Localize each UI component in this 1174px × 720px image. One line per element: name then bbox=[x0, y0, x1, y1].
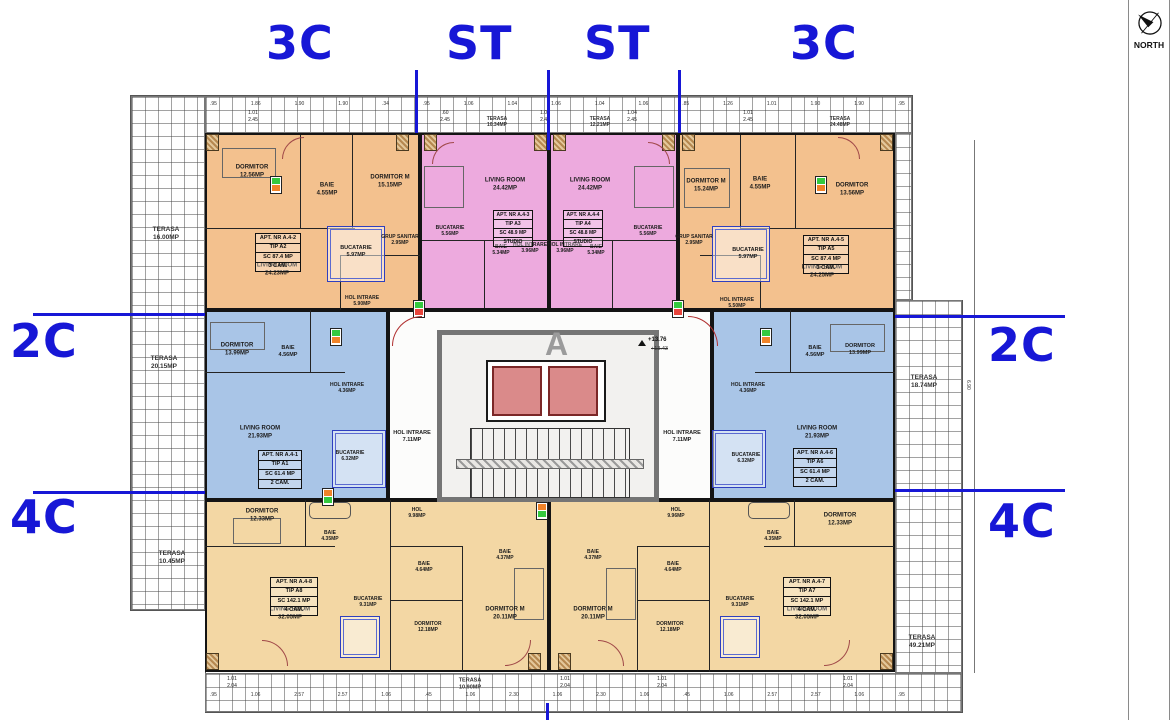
riser-shaft bbox=[322, 488, 334, 506]
plan-outline bbox=[912, 95, 913, 301]
north-compass-icon bbox=[1133, 6, 1167, 40]
dimension-pair: 1.01 2.04 bbox=[843, 676, 853, 689]
terrace-label: TERASA 24.48MP bbox=[830, 116, 851, 128]
zone-divider-line bbox=[678, 70, 681, 133]
apartment-info-box-a4-6: APT. NR A.4-6TIP A6 SC 61.4 MP2 CAM. bbox=[793, 448, 837, 487]
room-label: BAIE 4.64MP bbox=[415, 561, 432, 574]
room-label: BUCATARIE 6.32MP bbox=[732, 452, 761, 465]
terrace-left-grid bbox=[131, 96, 205, 610]
room-label: LIVING ROOM 21.93MP bbox=[240, 426, 280, 441]
wall-post bbox=[424, 134, 437, 151]
elevation-current: +13.76 bbox=[648, 337, 667, 343]
wall bbox=[484, 240, 485, 308]
wall bbox=[794, 500, 795, 546]
elevator-right bbox=[548, 366, 598, 416]
wall-post bbox=[206, 134, 219, 151]
room-label: HOL INTRARE 5.90MP bbox=[345, 295, 379, 308]
wall bbox=[764, 546, 894, 547]
wall bbox=[310, 310, 311, 372]
terrace-label: TERASA 10.90MP bbox=[459, 677, 482, 690]
room-label: BAIE 4.37MP bbox=[496, 549, 513, 562]
bed bbox=[424, 166, 464, 208]
plan-outline bbox=[962, 300, 963, 713]
hall-label-right: HOL INTRARE 7.11MP bbox=[663, 430, 700, 444]
wall bbox=[352, 135, 353, 228]
room-label: BAIE 4.64MP bbox=[664, 561, 681, 574]
terrace-label: TERASA 10.34MP bbox=[487, 116, 508, 128]
dimension-pair: 1.01 2.04 bbox=[560, 676, 570, 689]
room-label: DORMITOR 12.18MP bbox=[414, 621, 441, 634]
plan-outline bbox=[130, 610, 206, 611]
terrace-label: TERASA 12.21MP bbox=[590, 116, 611, 128]
terrace-right-grid bbox=[895, 300, 962, 673]
kitchen-a4-7 bbox=[720, 616, 760, 658]
room-label: BAIE 4.56MP bbox=[279, 345, 298, 359]
party-wall bbox=[548, 133, 551, 310]
room-label: HOL INTRARE 4.36MP bbox=[731, 382, 765, 395]
apartment-info-box-a4-7: APT. NR A.4-7TIP A7 SC 142.1 MP4 CAM. bbox=[783, 577, 831, 616]
terrace-label: TERASA 10.45MP bbox=[159, 550, 186, 566]
room-label: BAIE 4.56MP bbox=[806, 345, 825, 359]
room-label: DORMITOR 12.33MP bbox=[824, 513, 857, 528]
core-watermark-letter: A bbox=[545, 328, 568, 360]
elevator-left bbox=[492, 366, 542, 416]
riser-shaft bbox=[815, 176, 827, 194]
wall-post bbox=[682, 134, 695, 151]
bed bbox=[634, 166, 674, 208]
zone-divider-line bbox=[895, 489, 1065, 492]
floor-plan-canvas: A +13.76 +13.43 HOL INTRARE 7.11MP HOL I… bbox=[0, 0, 1174, 720]
zone-divider-line bbox=[547, 70, 550, 150]
wall bbox=[205, 372, 345, 373]
wall-post bbox=[396, 134, 409, 151]
stair-landing bbox=[456, 459, 644, 469]
wall bbox=[755, 372, 895, 373]
dimension-side: 6.90 bbox=[965, 380, 971, 390]
terrace-label: TERASA 16.00MP bbox=[153, 226, 180, 242]
north-strip: NORTH bbox=[1128, 0, 1170, 720]
terrace-right-narrow-grid bbox=[895, 133, 912, 300]
room-label: BAIE 4.35MP bbox=[764, 530, 781, 543]
wall bbox=[790, 310, 791, 372]
room-label: BUCATARIE 5.97MP bbox=[340, 245, 372, 259]
dimension-row-top: .951.861.901.90.34.951.061.041.061.041.0… bbox=[210, 101, 905, 107]
wall-post bbox=[558, 653, 571, 670]
room-label: HOL 9.96MP bbox=[667, 507, 684, 520]
room-label: DORMITOR 13.99MP bbox=[221, 343, 254, 358]
zone-label-4c-left: 4C bbox=[10, 494, 78, 540]
room-label: DORMITOR M 15.24MP bbox=[686, 179, 725, 194]
dimension-pair: 1.01 2.45 bbox=[248, 110, 258, 123]
zone-label-3c-left: 3C bbox=[266, 20, 334, 66]
dimension-row-bottom: .951.062.572.571.06.451.062.301.062.301.… bbox=[210, 692, 905, 698]
room-label: BUCATARIE 9.31MP bbox=[354, 596, 383, 609]
dimension-pair: 1.01 2.45 bbox=[743, 110, 753, 123]
terrace-label: TERASA 18.74MP bbox=[911, 374, 938, 390]
level-marker-icon bbox=[638, 340, 646, 346]
dimension-pair: 1.04 2.45 bbox=[627, 110, 637, 123]
apartment-info-box-a4-8: APT. NR A.4-8TIP A8 SC 142.1 MP4 CAM. bbox=[270, 577, 318, 616]
kitchen-a4-8 bbox=[340, 616, 380, 658]
wall-post bbox=[206, 653, 219, 670]
party-wall bbox=[548, 500, 551, 672]
wall-post bbox=[534, 134, 547, 151]
terrace-label: TERASA 49.21MP bbox=[909, 634, 936, 650]
dimension-pair: 1.01 2.04 bbox=[227, 676, 237, 689]
room-label: DORMITOR 12.33MP bbox=[246, 509, 279, 524]
room-label: DORMITOR 12.18MP bbox=[656, 621, 683, 634]
wall bbox=[390, 546, 462, 547]
room-label: BUCATARIE 5.56MP bbox=[436, 225, 465, 238]
wall bbox=[637, 600, 709, 601]
wall bbox=[390, 600, 462, 601]
room-label: BAIE 4.37MP bbox=[584, 549, 601, 562]
wall-post bbox=[553, 134, 566, 151]
wall bbox=[390, 500, 391, 672]
riser-shaft bbox=[270, 176, 282, 194]
room-label: LIVING ROOM 24.42MP bbox=[485, 178, 525, 193]
room-label: BUCATARIE 5.97MP bbox=[732, 247, 764, 261]
wall-post bbox=[880, 653, 893, 670]
elevation-previous: +13.43 bbox=[651, 346, 668, 352]
apartment-info-box-a4-2: APT. NR A.4-2TIP A2 SC 87.4 MP3 CAM. bbox=[255, 233, 301, 272]
room-label: BAIE 4.55MP bbox=[750, 177, 771, 192]
room-label: HOL INTRARE 5.50MP bbox=[720, 297, 754, 310]
riser-shaft bbox=[760, 328, 772, 346]
zone-label-st-right: ST bbox=[584, 20, 651, 66]
riser-shaft bbox=[536, 502, 548, 520]
dimension-pair: .60 2.45 bbox=[440, 110, 450, 123]
room-label: BUCATARIE 5.56MP bbox=[634, 225, 663, 238]
wall-post bbox=[528, 653, 541, 670]
room-label: LIVING ROOM 21.93MP bbox=[797, 426, 837, 441]
riser-shaft bbox=[330, 328, 342, 346]
room-label: LIVING ROOM 24.42MP bbox=[570, 178, 610, 193]
room-label: DORMITOR M 20.11MP bbox=[485, 607, 524, 622]
wall bbox=[709, 500, 710, 672]
room-label: DORMITOR 12.56MP bbox=[236, 165, 269, 180]
room-label: HOL INTRARE 4.36MP bbox=[330, 382, 364, 395]
apartment-info-box-a4-3: APT. NR A.4-3TIP A3 SC 48.9 MPSTUDIO bbox=[493, 210, 533, 247]
apartment-info-box-a4-5: APT. NR A.4-5TIP A5 SC 87.4 MP3 CAM. bbox=[803, 235, 849, 274]
room-label: DORMITOR M 15.15MP bbox=[370, 175, 409, 190]
room-label: BAIE 4.35MP bbox=[321, 530, 338, 543]
wall bbox=[637, 546, 709, 547]
wall bbox=[637, 546, 638, 672]
room-label: GRUP SANITAR 2.95MP bbox=[381, 234, 419, 247]
wall-post bbox=[880, 134, 893, 151]
room-label: BAIE 4.55MP bbox=[317, 183, 338, 198]
room-label: DORMITOR M 20.11MP bbox=[573, 607, 612, 622]
bathtub bbox=[748, 502, 790, 519]
north-label: NORTH bbox=[1129, 40, 1169, 50]
zone-label-st-left: ST bbox=[446, 20, 513, 66]
riser-shaft bbox=[672, 300, 684, 318]
room-label: BUCATARIE 9.31MP bbox=[726, 596, 755, 609]
wall bbox=[740, 135, 741, 228]
hall-label-left: HOL INTRARE 7.11MP bbox=[393, 430, 430, 444]
zone-divider-line bbox=[415, 70, 418, 133]
room-label: DORMITOR 13.56MP bbox=[836, 183, 869, 198]
plan-outline bbox=[205, 712, 963, 713]
room-label: BUCATARIE 6.32MP bbox=[336, 450, 365, 463]
wall bbox=[462, 546, 463, 672]
zone-divider-line bbox=[546, 703, 549, 720]
zone-label-2c-left: 2C bbox=[10, 318, 78, 364]
zone-label-2c-right: 2C bbox=[988, 322, 1056, 368]
terrace-label: TERASA 20.15MP bbox=[151, 355, 178, 371]
wall bbox=[205, 546, 335, 547]
zone-label-4c-right: 4C bbox=[988, 498, 1056, 544]
apartment-info-box-a4-1: APT. NR A.4-1TIP A1 SC 61.4 MP2 CAM. bbox=[258, 450, 302, 489]
wall bbox=[795, 135, 796, 228]
room-label: GRUP SANITAR 2.95MP bbox=[675, 234, 713, 247]
apartment-a4-5-block bbox=[678, 133, 895, 310]
wall bbox=[305, 500, 306, 546]
dimension-pair: 1.01 2.04 bbox=[657, 676, 667, 689]
room-label: HOL 9.98MP bbox=[408, 507, 425, 520]
room-label: DORMITOR 13.99MP bbox=[845, 343, 875, 357]
apartment-info-box-a4-4: APT. NR A.4-4TIP A4 SC 48.8 MPSTUDIO bbox=[563, 210, 603, 247]
dimension-line-right bbox=[974, 140, 975, 673]
zone-label-3c-right: 3C bbox=[790, 20, 858, 66]
wall bbox=[612, 240, 613, 308]
